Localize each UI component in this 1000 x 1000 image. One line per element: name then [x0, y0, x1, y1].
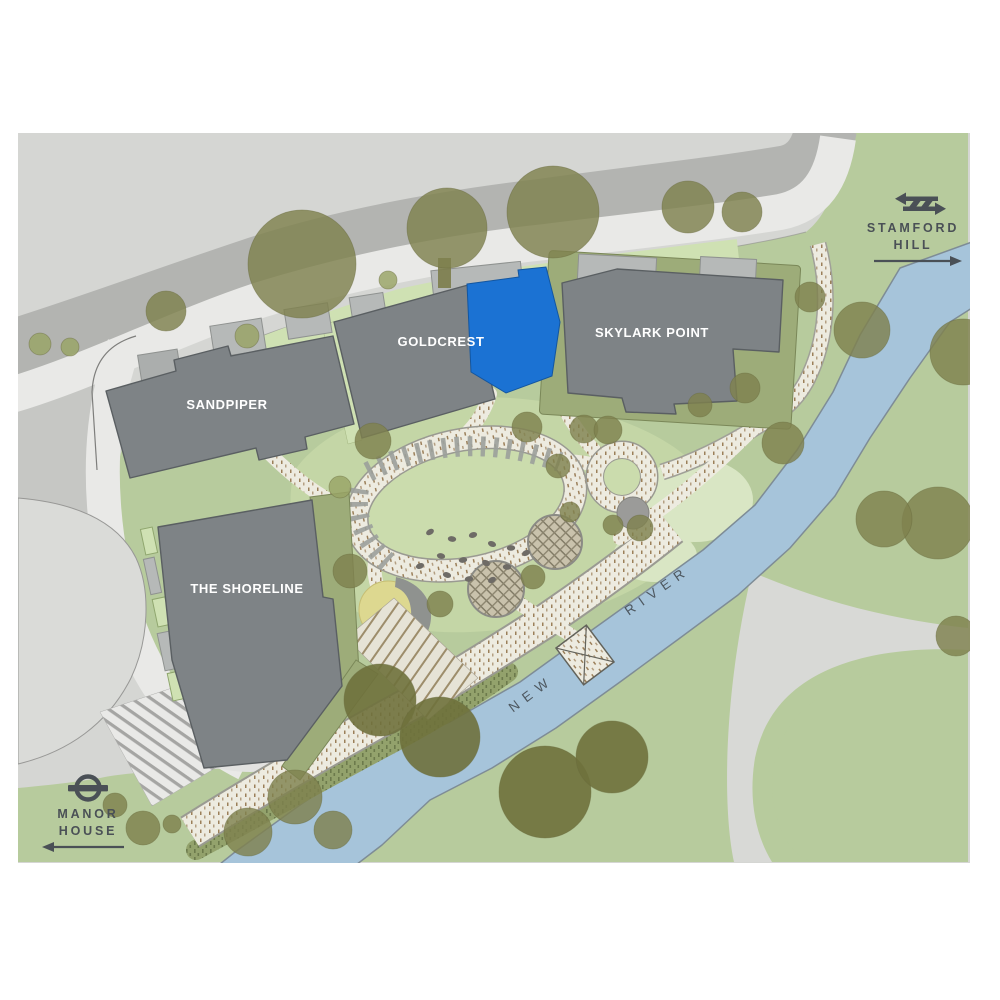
- tree-icon: [603, 515, 623, 535]
- tree-icon: [427, 591, 453, 617]
- tree-icon: [594, 416, 622, 444]
- tree-icon: [268, 770, 322, 824]
- tree-icon: [407, 188, 487, 268]
- tree-icon: [146, 291, 186, 331]
- tree-icon: [400, 697, 480, 777]
- tree-icon: [576, 721, 648, 793]
- tree-icon: [856, 491, 912, 547]
- site-plan-map: SANDPIPER GOLDCREST SKYLARK POINT THE SH…: [0, 0, 1000, 1000]
- tree-icon: [521, 565, 545, 589]
- tree-icon: [795, 282, 825, 312]
- tree-icon: [560, 502, 580, 522]
- tree-icon: [379, 271, 397, 289]
- highlighted-plot[interactable]: [467, 267, 560, 393]
- tree-icon: [235, 324, 259, 348]
- tree-icon: [762, 422, 804, 464]
- tree-icon: [730, 373, 760, 403]
- station-label-line: HILL: [894, 238, 933, 252]
- tree-icon: [662, 181, 714, 233]
- station-label-line: STAMFORD: [867, 221, 959, 235]
- tree-icon: [163, 815, 181, 833]
- station-label-line: HOUSE: [59, 824, 117, 838]
- label-goldcrest: GOLDCREST: [397, 334, 484, 349]
- tree-icon: [61, 338, 79, 356]
- tree-icon: [224, 808, 272, 856]
- timber-deck: [468, 561, 524, 617]
- tree-icon: [722, 192, 762, 232]
- tree-icon: [333, 554, 367, 588]
- timber-deck: [528, 515, 582, 569]
- play-loop-lawn: [604, 459, 640, 495]
- label-sandpiper: SANDPIPER: [186, 397, 267, 412]
- tree-icon: [248, 210, 356, 318]
- tree-icon: [355, 423, 391, 459]
- tree-icon: [314, 811, 352, 849]
- tree-icon: [834, 302, 890, 358]
- tree-icon: [29, 333, 51, 355]
- tree-icon: [627, 515, 653, 541]
- tree-icon: [688, 393, 712, 417]
- tree-icon: [507, 166, 599, 258]
- site-plan-page: SANDPIPER GOLDCREST SKYLARK POINT THE SH…: [0, 0, 1000, 1000]
- tree-icon: [902, 487, 974, 559]
- label-the-shoreline: THE SHORELINE: [190, 581, 303, 596]
- tree-icon: [546, 454, 570, 478]
- label-skylark-point: SKYLARK POINT: [595, 325, 709, 340]
- tree-icon: [329, 476, 351, 498]
- tree-icon: [512, 412, 542, 442]
- station-label-line: MANOR: [57, 807, 118, 821]
- tree-icon: [936, 616, 976, 656]
- tree-icon: [126, 811, 160, 845]
- tree-icon: [930, 319, 996, 385]
